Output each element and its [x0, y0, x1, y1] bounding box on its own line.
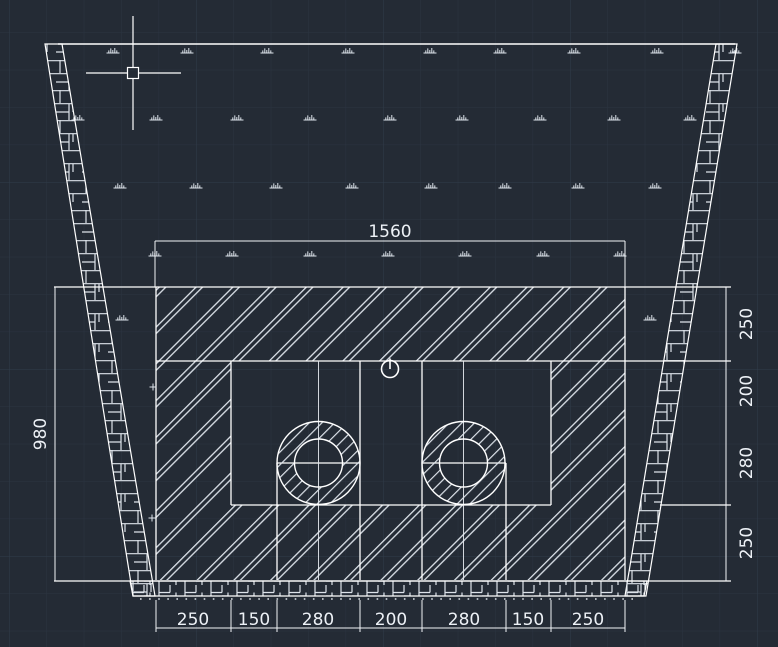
- dim-text-bottom-4: 280: [448, 610, 480, 630]
- dim-text-right-2: 280: [737, 447, 757, 479]
- dim-text-bottom-3: 200: [375, 610, 407, 630]
- cad-canvas[interactable]: 1560 980 250 200 280 250 250 150 280 200…: [0, 0, 778, 647]
- left-wall-hatch: [156, 361, 231, 580]
- bottom-slab-hatch: [231, 505, 551, 580]
- dim-text-top-width: 1560: [368, 222, 411, 242]
- dim-text-right-0: 250: [737, 308, 757, 340]
- dim-text-bottom-2: 280: [302, 610, 334, 630]
- dim-text-right-1: 200: [737, 375, 757, 407]
- cad-viewport[interactable]: 1560 980 250 200 280 250 250 150 280 200…: [0, 0, 778, 647]
- top-slab-hatch: [156, 287, 625, 361]
- footing-brick-band: [130, 581, 647, 596]
- dim-text-left-height: 980: [31, 418, 51, 450]
- dim-text-right-3: 250: [737, 527, 757, 559]
- right-wall-hatch: [551, 361, 625, 580]
- dim-text-bottom-1: 150: [238, 610, 270, 630]
- dim-text-bottom-5: 150: [512, 610, 544, 630]
- dim-text-bottom-0: 250: [177, 610, 209, 630]
- dim-text-bottom-6: 250: [572, 610, 604, 630]
